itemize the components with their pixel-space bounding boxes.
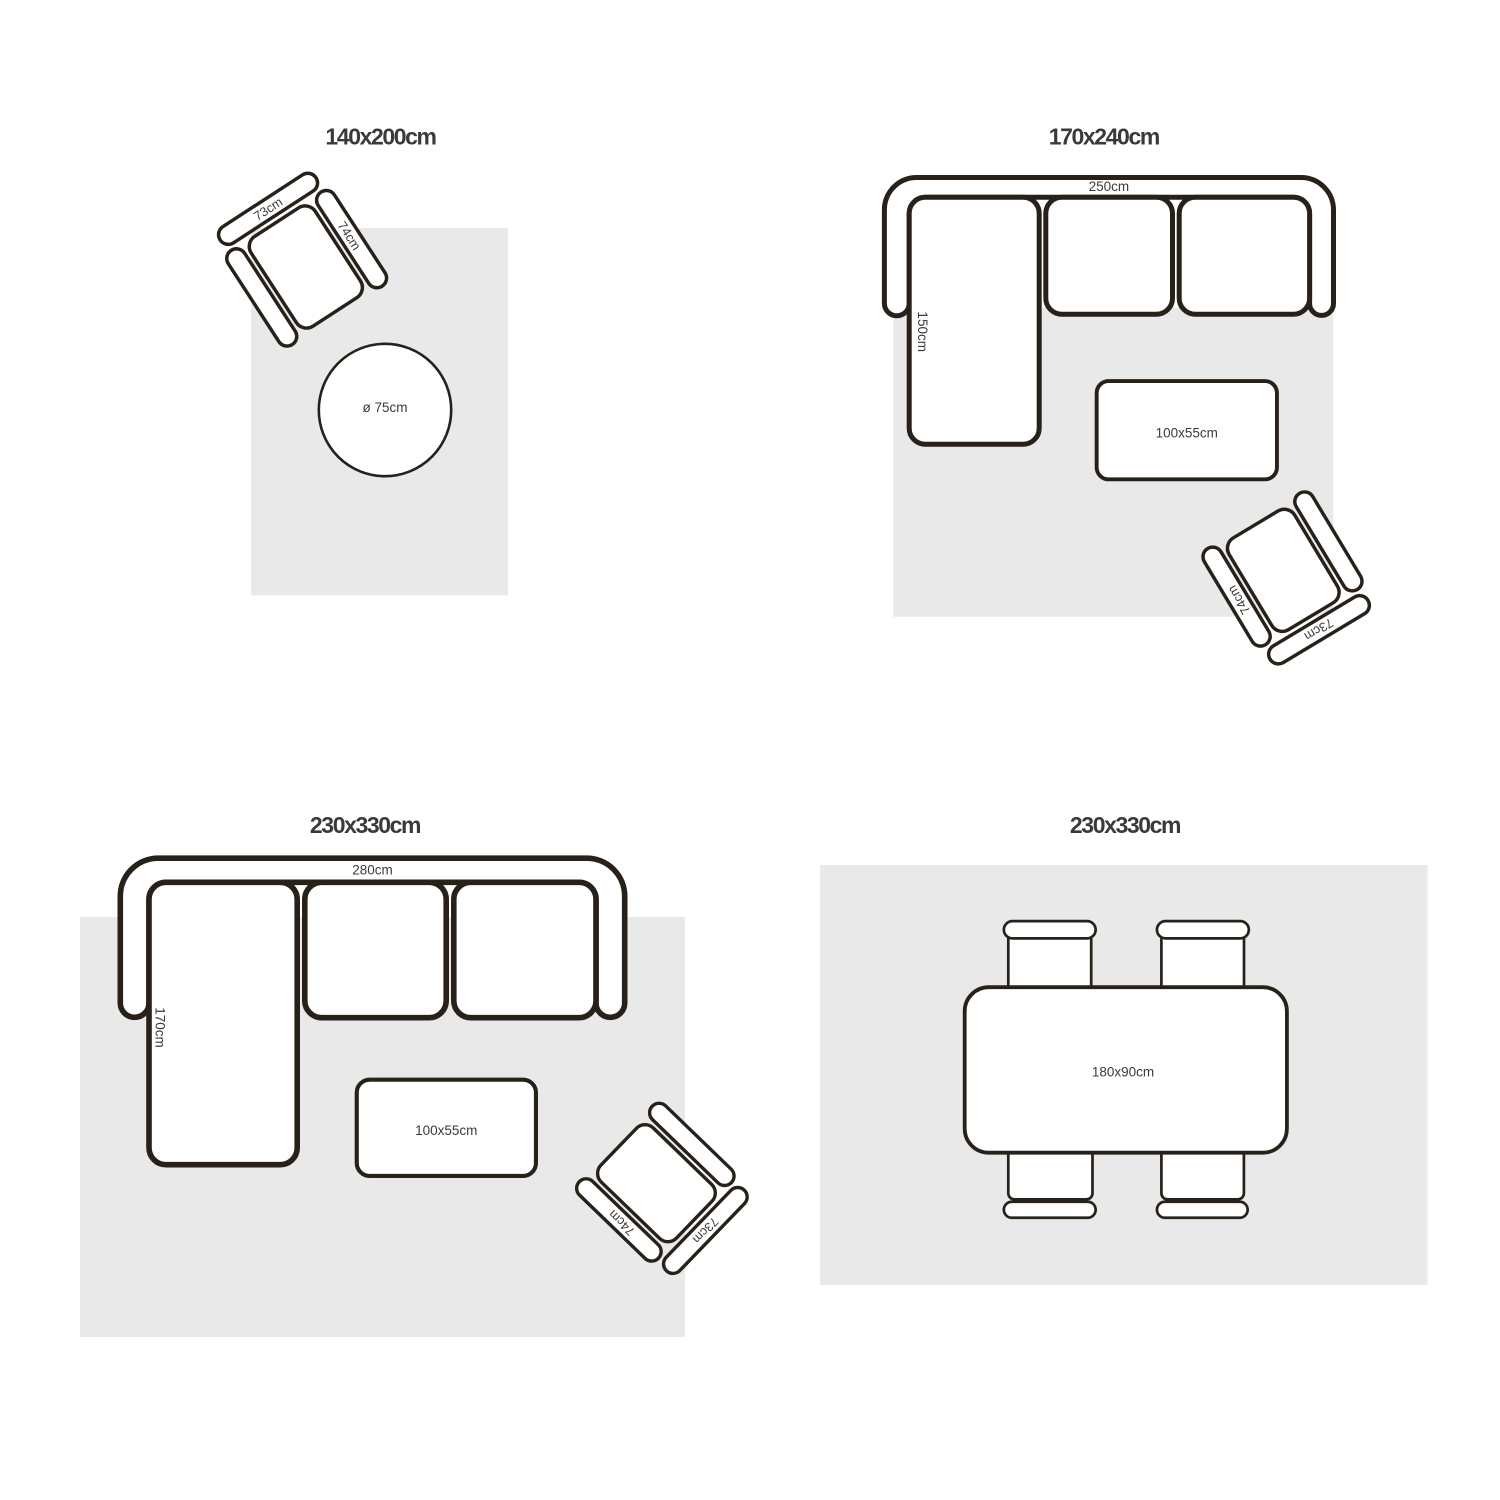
svg-text:100x55cm: 100x55cm (415, 1123, 477, 1138)
svg-text:140x200cm: 140x200cm (325, 124, 436, 150)
svg-text:230x330cm: 230x330cm (1070, 812, 1181, 838)
svg-text:170cm: 170cm (153, 1007, 168, 1048)
svg-text:280cm: 280cm (352, 863, 393, 878)
svg-text:180x90cm: 180x90cm (1092, 1065, 1154, 1080)
svg-text:150cm: 150cm (915, 311, 930, 352)
svg-text:ø 75cm: ø 75cm (362, 400, 407, 415)
svg-text:100x55cm: 100x55cm (1156, 426, 1218, 441)
svg-text:250cm: 250cm (1089, 179, 1130, 194)
svg-text:230x330cm: 230x330cm (310, 812, 421, 838)
svg-text:170x240cm: 170x240cm (1049, 124, 1160, 150)
